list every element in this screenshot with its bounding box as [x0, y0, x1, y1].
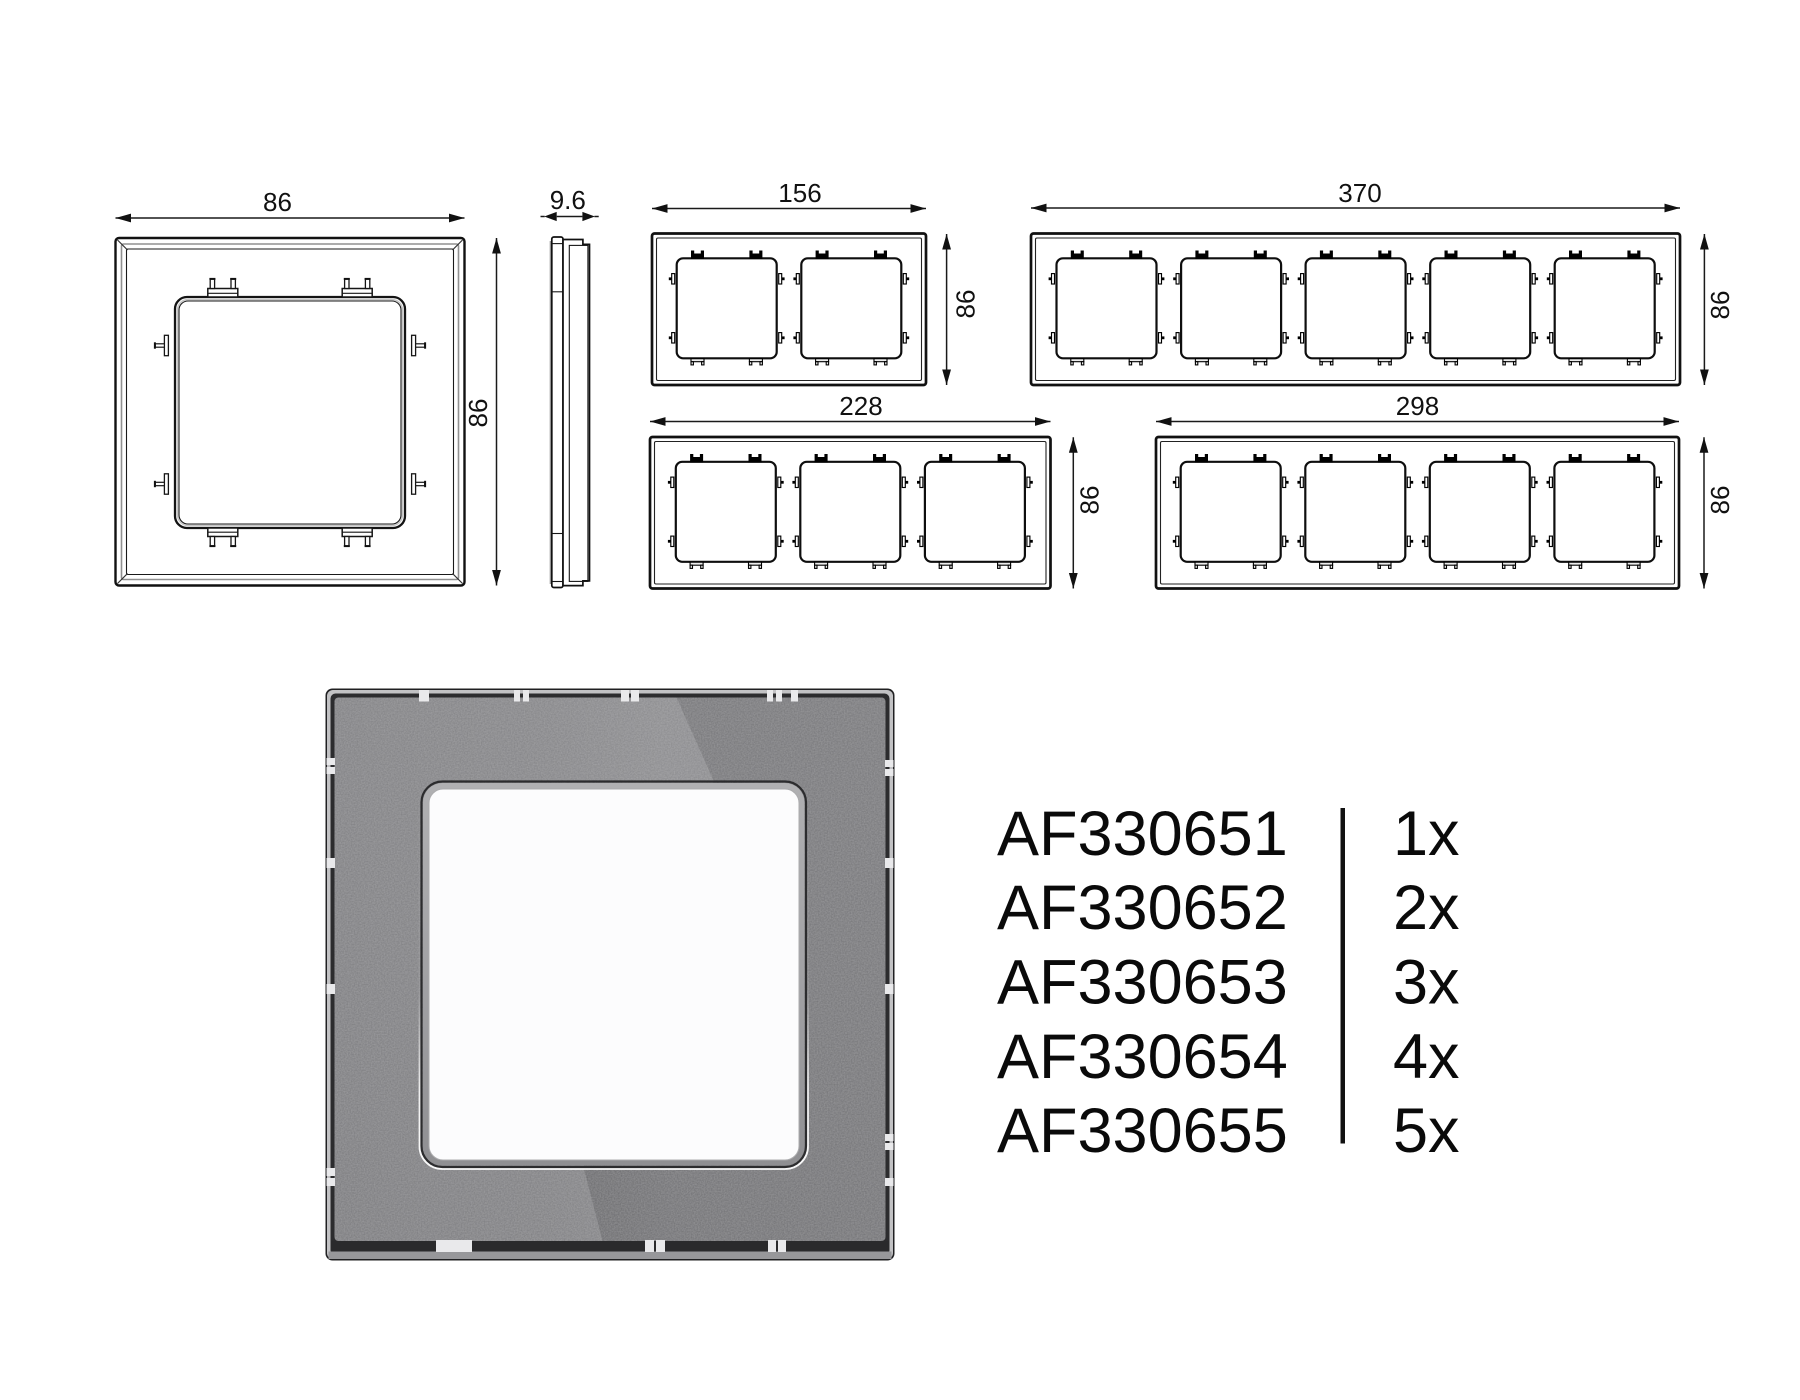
svg-text:AF330652: AF330652 [997, 873, 1288, 943]
svg-text:5x: 5x [1393, 1096, 1460, 1166]
svg-text:2x: 2x [1393, 873, 1460, 943]
svg-text:86: 86 [263, 187, 292, 217]
svg-text:86: 86 [1705, 291, 1735, 320]
svg-text:9.6: 9.6 [550, 185, 586, 215]
svg-text:86: 86 [950, 290, 980, 319]
svg-text:370: 370 [1338, 178, 1381, 208]
svg-text:86: 86 [1705, 486, 1735, 515]
svg-text:AF330653: AF330653 [997, 948, 1288, 1018]
svg-text:1x: 1x [1393, 799, 1460, 869]
svg-text:3x: 3x [1393, 948, 1460, 1018]
svg-text:AF330651: AF330651 [997, 799, 1288, 869]
svg-text:298: 298 [1396, 391, 1439, 421]
svg-text:86: 86 [463, 399, 493, 428]
svg-text:156: 156 [778, 178, 821, 208]
svg-text:4x: 4x [1393, 1022, 1460, 1092]
svg-text:86: 86 [1074, 486, 1104, 515]
svg-text:228: 228 [839, 391, 882, 421]
svg-text:AF330654: AF330654 [997, 1022, 1288, 1092]
svg-text:AF330655: AF330655 [997, 1096, 1288, 1166]
